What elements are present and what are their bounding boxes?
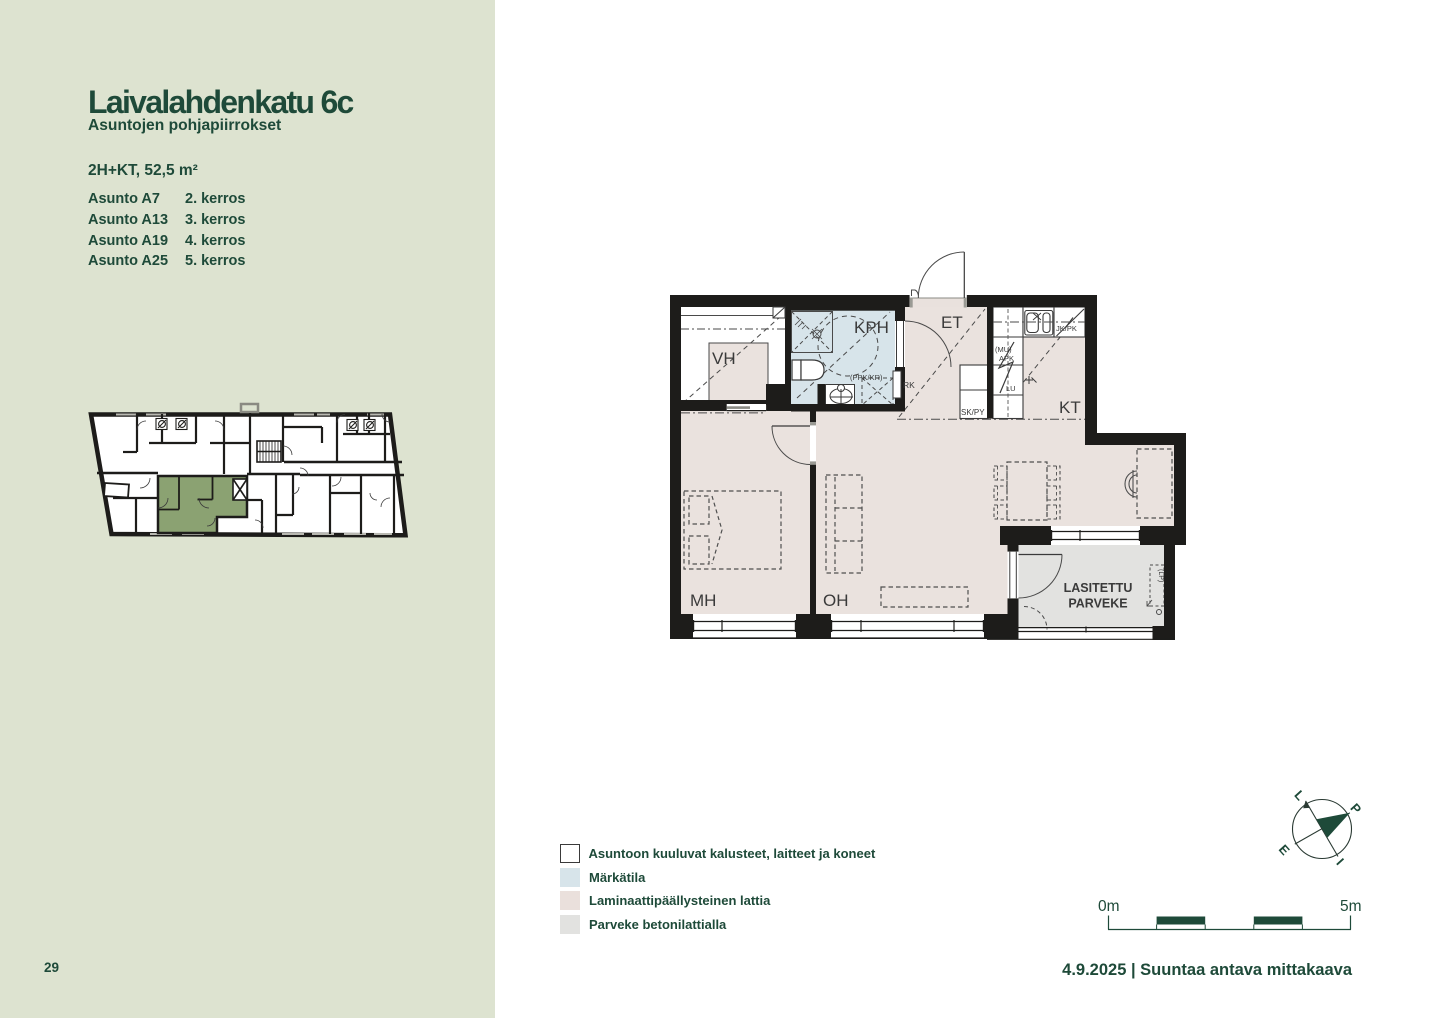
svg-text:PARVEKE: PARVEKE: [1068, 597, 1127, 611]
svg-text:VH: VH: [712, 349, 736, 368]
svg-text:OH: OH: [823, 591, 849, 610]
svg-text:5m: 5m: [1340, 898, 1362, 915]
svg-text:E: E: [1276, 842, 1293, 859]
svg-text:I: I: [1333, 855, 1347, 868]
svg-text:(PPK/KR): (PPK/KR): [850, 373, 883, 382]
svg-text:LASITETTU: LASITETTU: [1064, 581, 1133, 595]
svg-text:SK/PY: SK/PY: [961, 408, 985, 417]
svg-text:ET: ET: [941, 313, 963, 332]
svg-text:MH: MH: [690, 591, 716, 610]
svg-text:KT: KT: [1059, 398, 1081, 417]
svg-text:0m: 0m: [1098, 898, 1120, 915]
svg-text:JK/PK: JK/PK: [1056, 324, 1077, 333]
svg-text:L: L: [1291, 787, 1308, 803]
svg-text:KPH: KPH: [854, 318, 889, 337]
svg-text:RK: RK: [903, 380, 915, 390]
svg-text:(MU): (MU): [995, 345, 1012, 354]
svg-text:(LP): (LP): [1157, 569, 1164, 582]
svg-text:LU: LU: [1006, 384, 1016, 393]
svg-text:APK: APK: [999, 354, 1014, 363]
svg-text:P: P: [1347, 800, 1364, 817]
